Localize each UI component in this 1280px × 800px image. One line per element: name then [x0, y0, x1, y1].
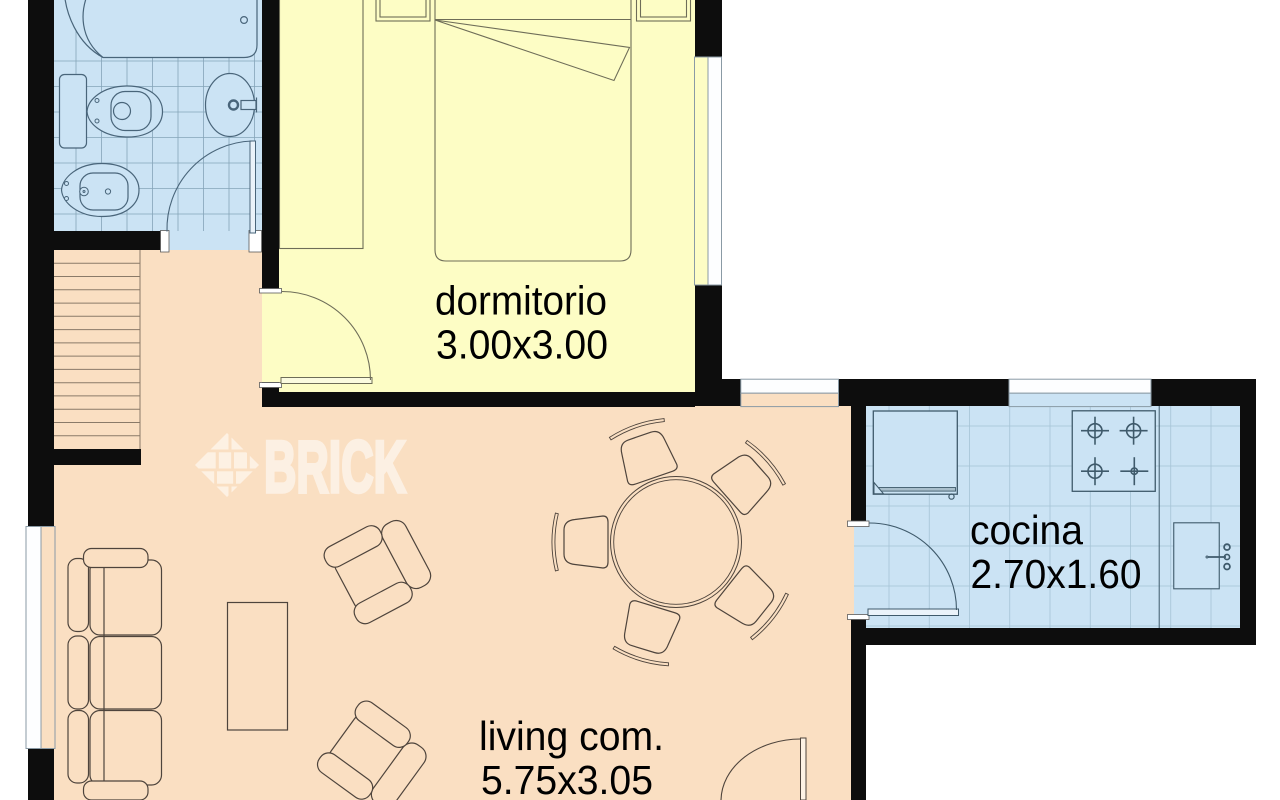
- svg-text:2.70x1.60: 2.70x1.60: [971, 551, 1142, 597]
- svg-text:living com.: living com.: [479, 713, 664, 759]
- svg-text:dormitorio: dormitorio: [435, 278, 607, 324]
- svg-text:cocina: cocina: [970, 507, 1083, 553]
- svg-text:3.00x3.00: 3.00x3.00: [436, 322, 608, 368]
- svg-text:5.75x3.05: 5.75x3.05: [481, 757, 653, 800]
- svg-text:BRICK: BRICK: [264, 426, 406, 508]
